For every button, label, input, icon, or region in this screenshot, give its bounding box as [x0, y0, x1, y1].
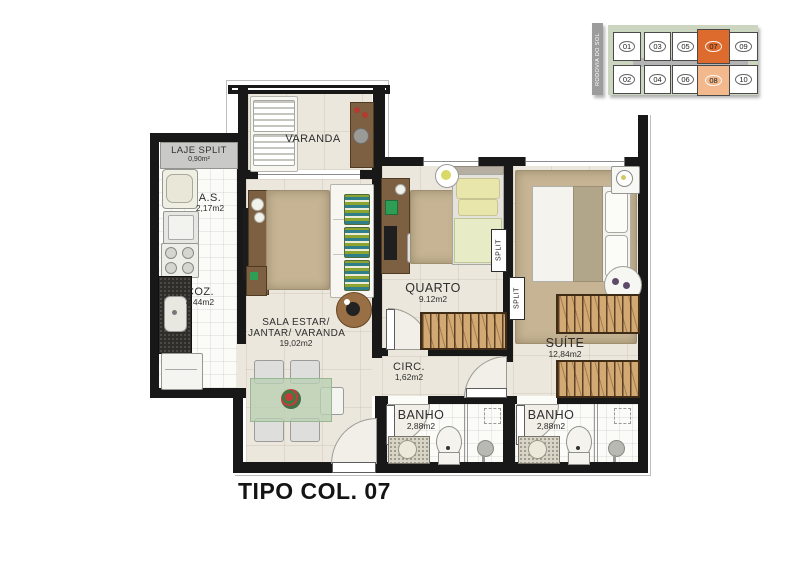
unit-number: 03 — [649, 41, 665, 53]
keyplan-unit-04: 04 — [644, 65, 671, 94]
room-area: 0,90m² — [161, 156, 237, 163]
bed-pillow — [458, 199, 498, 216]
room-area: 2,88m2 — [520, 422, 582, 432]
keyplan-unit-02: 02 — [613, 65, 641, 94]
room-label-suite: SUÍTE 12,84m2 — [527, 336, 603, 360]
room-label-sala: SALA ESTAR/ JANTAR/ VARANDA 19,02m2 — [248, 317, 344, 349]
wall — [513, 157, 525, 166]
varanda-railing — [232, 88, 386, 90]
suite-dresser — [556, 294, 640, 334]
keyplan-unit-10: 10 — [729, 65, 758, 94]
room-name: SUÍTE — [527, 336, 603, 350]
room-label-varanda: VARANDA — [268, 133, 358, 145]
wall — [360, 170, 372, 179]
wall — [233, 388, 243, 473]
unit-number: 09 — [735, 41, 751, 53]
table-highlight — [344, 299, 350, 305]
wall — [377, 396, 388, 404]
door-leaf-suite — [466, 388, 507, 398]
sofa-pillow — [344, 227, 370, 258]
decor-dot — [612, 278, 619, 285]
burner-icon — [165, 247, 177, 259]
keyplan-road-label: RODOVIA DO SOL — [595, 33, 601, 86]
toilet-tank — [568, 452, 590, 465]
bed-pillow — [456, 178, 500, 199]
door-leaf-quarto — [386, 309, 395, 350]
unit-number: 02 — [619, 74, 635, 86]
projection-line-bottom — [235, 475, 651, 476]
unit-number: 05 — [677, 41, 693, 53]
room-name: BANHO — [390, 408, 452, 422]
washing-machine-lid — [168, 215, 194, 240]
room-label-circ: CIRC. 1,62m2 — [383, 361, 435, 383]
shower-head-icon — [608, 440, 625, 457]
desk-tv — [384, 226, 397, 260]
keyplan-panel: 01 03 05 07 09 02 04 06 08 10 — [608, 25, 758, 95]
keyplan-unit-07-highlighted: 07 — [697, 29, 730, 64]
room-label-laje-split: LAJE SPLIT 0,90m² — [160, 142, 238, 169]
room-name: VARANDA — [268, 133, 358, 145]
room-label-banho2: BANHO 2,88m2 — [520, 408, 582, 432]
bed-pillow — [605, 191, 628, 233]
sofa-pillow — [344, 194, 370, 225]
room-area: 9.12m2 — [398, 295, 468, 305]
room-area: 4,44m2 — [168, 298, 232, 308]
room-label-coz: COZ. 4,44m2 — [168, 286, 232, 308]
bathroom-sink — [528, 440, 547, 459]
toilet-tank — [438, 452, 460, 465]
opening-banho1-door — [388, 396, 428, 404]
floorplan-page: SPLIT SPLIT LAJE SPLIT 0,90m² VARANDA A.… — [0, 0, 800, 565]
bathroom-sink — [398, 440, 417, 459]
burner-icon — [182, 262, 194, 274]
room-area: 2,88m2 — [390, 422, 452, 432]
shower-partition — [467, 404, 468, 462]
decor-dot — [623, 282, 630, 289]
room-area: 12,84m2 — [527, 350, 603, 360]
faucet-icon — [172, 310, 177, 315]
bed-blanket-band — [573, 186, 603, 282]
keyplan-unit-08-highlighted: 08 — [697, 65, 730, 96]
fridge-line — [165, 369, 197, 370]
unit-number: 10 — [735, 74, 751, 86]
keyplan-unit-03: 03 — [644, 32, 671, 61]
shower-drain-icon — [614, 408, 631, 424]
room-label-banho1: BANHO 2,88m2 — [390, 408, 452, 432]
wall — [150, 133, 248, 142]
toilet-drain — [576, 446, 580, 450]
wall — [372, 157, 423, 166]
shower-partition — [464, 404, 465, 462]
sala-desk — [246, 266, 267, 296]
keyplan-unit-06: 06 — [672, 65, 699, 94]
room-name: SALA ESTAR/ — [248, 317, 344, 328]
opening-sala-circ — [372, 358, 382, 396]
room-area: 19,02m2 — [248, 339, 344, 349]
shower-stem — [482, 455, 485, 462]
plant-icon — [354, 107, 360, 113]
burner-icon — [165, 262, 177, 274]
room-name: BANHO — [520, 408, 582, 422]
shower-drain-icon — [484, 408, 501, 424]
decor-plate — [395, 184, 406, 195]
opening-coz-sala — [237, 344, 246, 388]
wall — [150, 133, 159, 398]
room-name: LAJE SPLIT — [161, 145, 237, 156]
keyplan-unit-05: 05 — [672, 32, 699, 61]
unit-number: 01 — [619, 41, 635, 53]
suite-dresser — [556, 360, 640, 398]
burner-icon — [182, 247, 194, 259]
sofa-pillow — [344, 260, 370, 291]
toilet-drain — [446, 446, 450, 450]
lamp-bulb — [621, 175, 626, 180]
split-unit-tag: SPLIT — [491, 229, 507, 272]
keyplan-unit-09: 09 — [729, 32, 758, 61]
room-name: QUARTO — [398, 281, 468, 295]
wall — [373, 85, 385, 165]
decor-plate — [251, 198, 264, 211]
projection-line-right — [650, 115, 651, 475]
shower-head-icon — [477, 440, 494, 457]
fridge — [161, 353, 203, 390]
opening-banho2-door — [517, 396, 557, 404]
room-area: 2,17m2 — [180, 204, 240, 214]
room-area: 1,62m2 — [383, 373, 435, 383]
shower-partition — [594, 404, 595, 462]
unit-number: 08 — [705, 75, 721, 87]
ceiling-light-bulb — [441, 170, 451, 180]
plant-icon — [362, 112, 368, 118]
split-unit-tag: SPLIT — [509, 277, 525, 320]
wall — [233, 462, 332, 473]
unit-number: 04 — [649, 74, 665, 86]
split-label: SPLIT — [496, 240, 503, 262]
split-label: SPLIT — [514, 288, 521, 310]
sala-rug — [266, 190, 330, 290]
decor-green — [250, 272, 258, 280]
decor-green — [385, 200, 398, 215]
room-label-as: A.S. 2,17m2 — [180, 192, 240, 214]
keyplan-unit-01: 01 — [613, 32, 641, 61]
unit-number: 07 — [705, 41, 721, 53]
centerpiece-flowers — [281, 389, 301, 409]
unit-number: 06 — [677, 74, 693, 86]
varanda-cushion — [253, 100, 295, 132]
shower-stem — [613, 455, 616, 462]
quarto-wardrobe — [420, 312, 507, 350]
wall — [503, 396, 515, 473]
door-leaf-entry — [332, 462, 376, 473]
room-label-quarto: QUARTO 9.12m2 — [398, 281, 468, 305]
window-suite — [525, 157, 625, 166]
decor-plate — [254, 212, 265, 223]
shower-partition — [597, 404, 598, 462]
plan-title: TIPO COL. 07 — [238, 478, 391, 505]
keyplan-road-strip: RODOVIA DO SOL — [592, 23, 603, 95]
